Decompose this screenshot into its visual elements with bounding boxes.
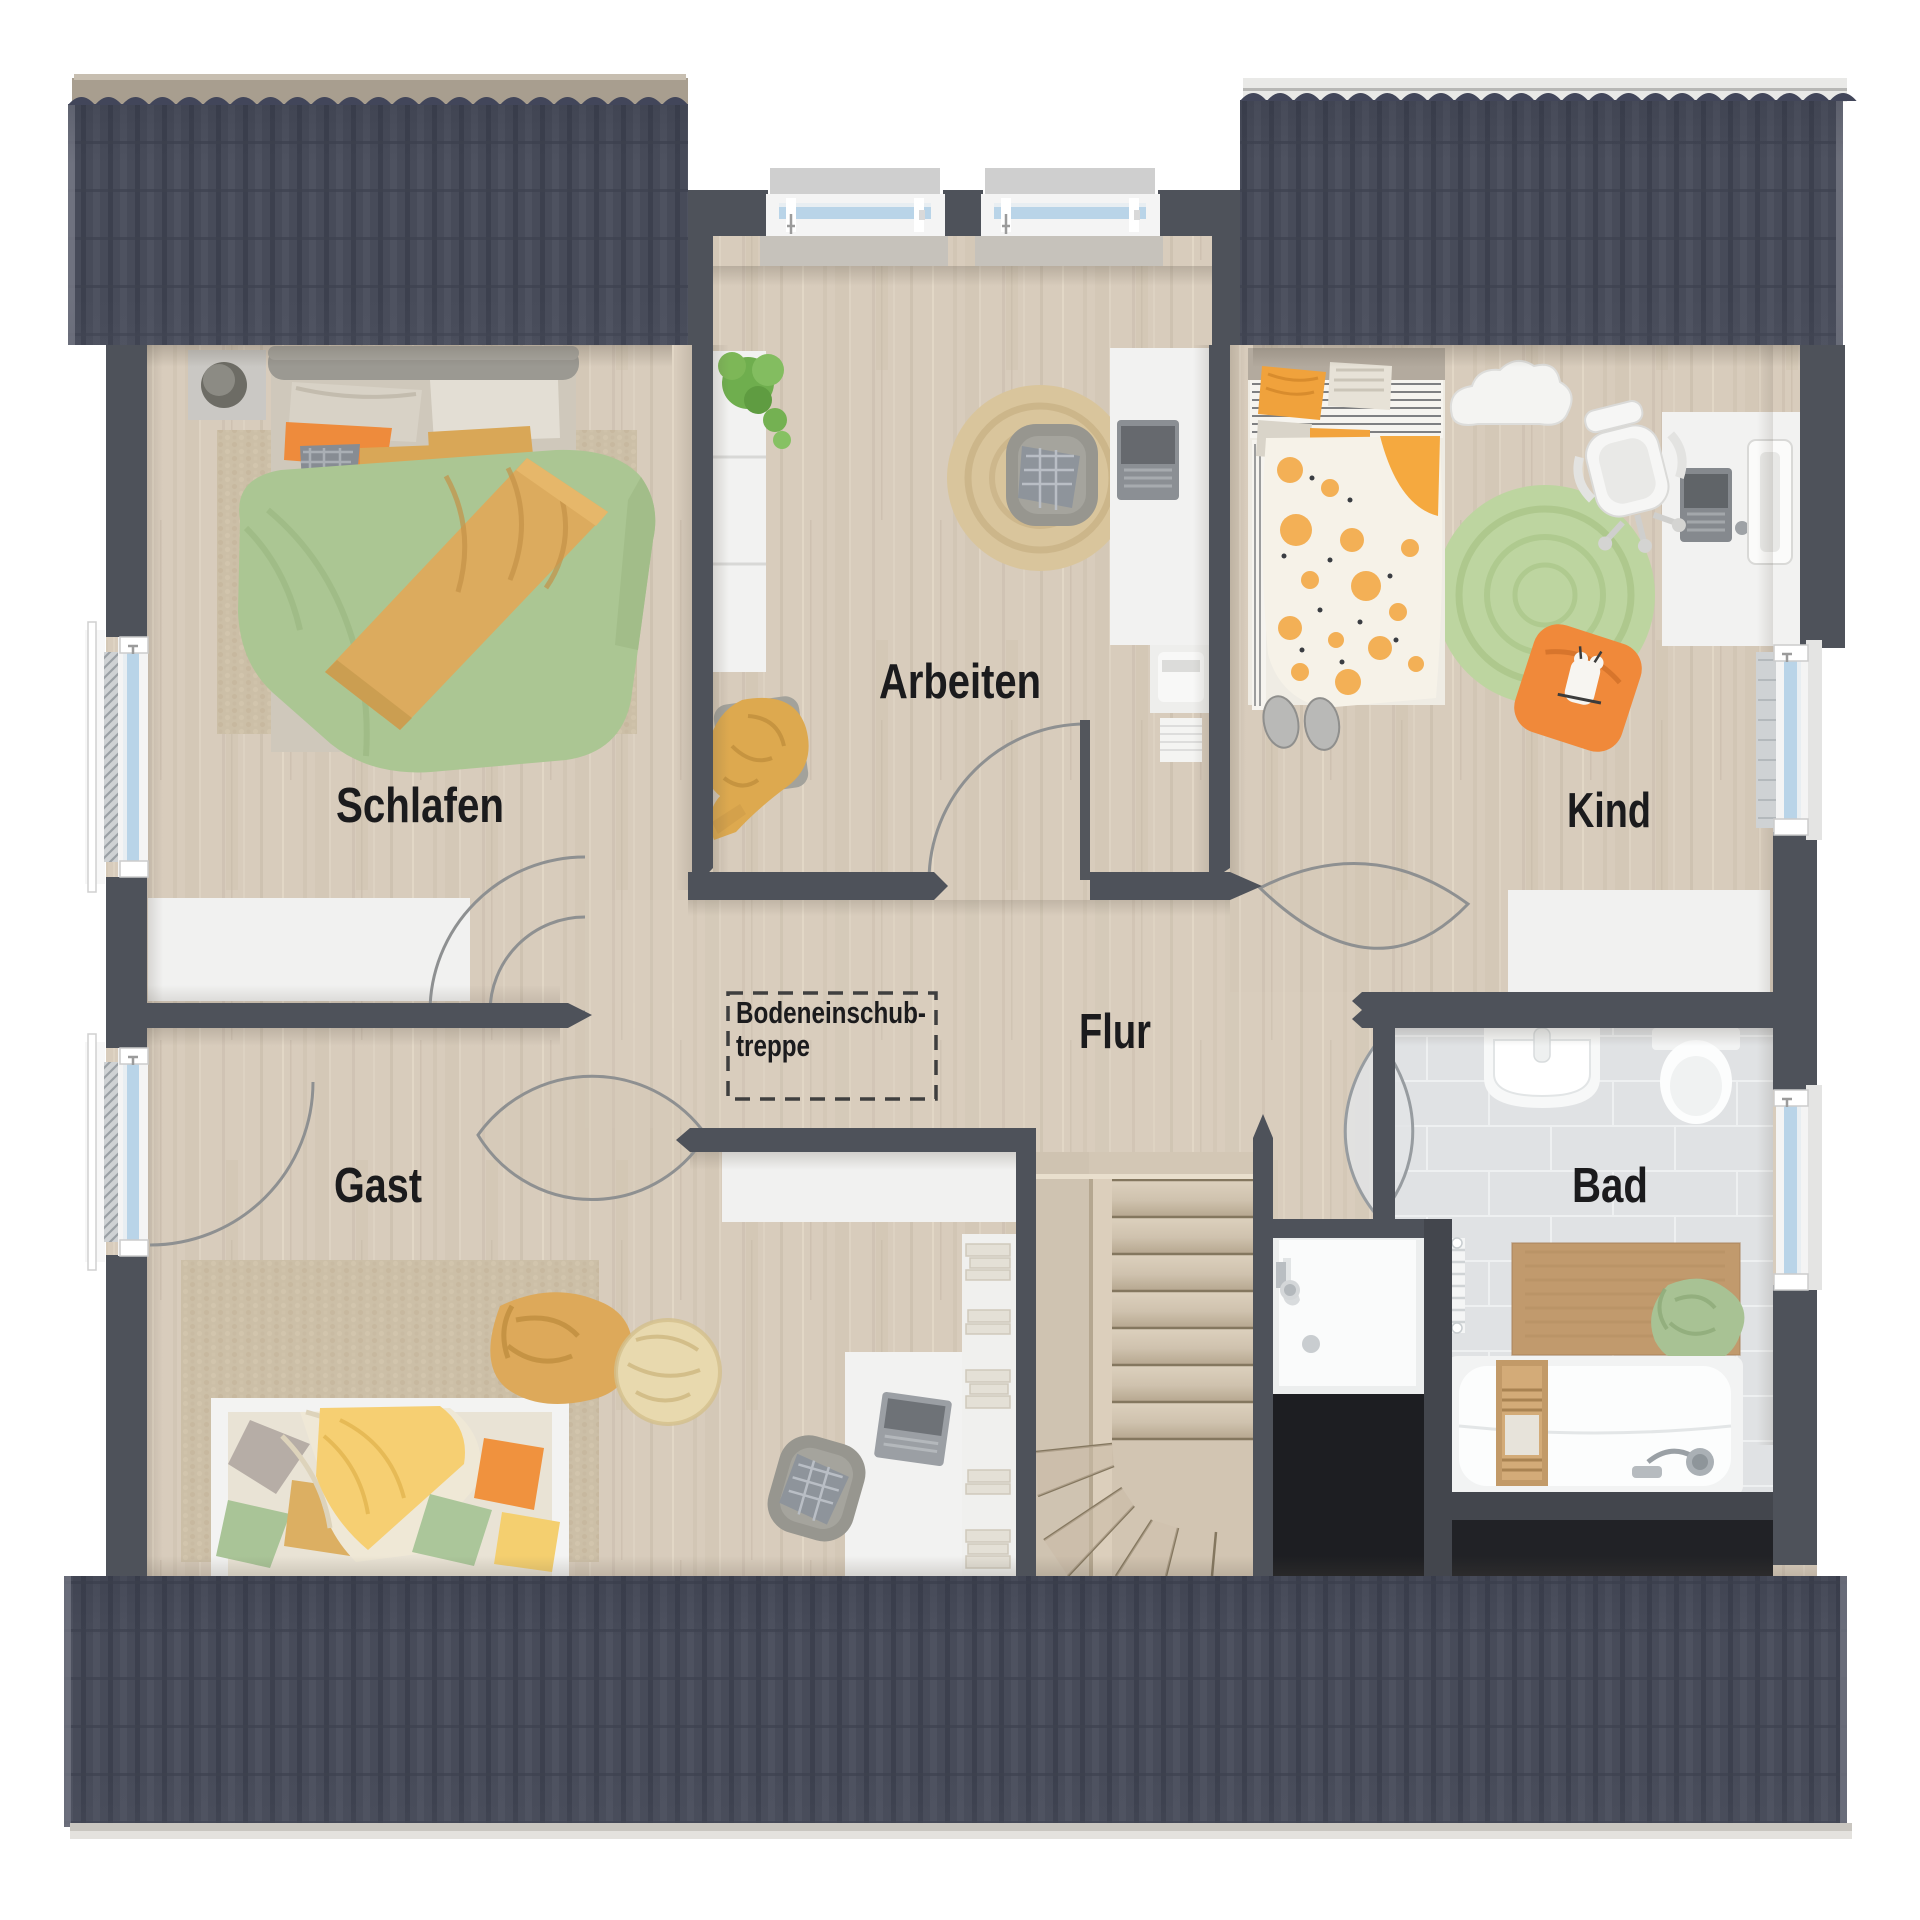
svg-text:treppe: treppe bbox=[736, 1028, 810, 1063]
svg-text:Gast: Gast bbox=[334, 1159, 422, 1213]
svg-text:Bad: Bad bbox=[1572, 1159, 1648, 1213]
svg-text:Flur: Flur bbox=[1079, 1005, 1151, 1059]
svg-text:Bodeneinschub-: Bodeneinschub- bbox=[736, 995, 926, 1030]
svg-text:Schlafen: Schlafen bbox=[336, 779, 504, 833]
svg-text:Arbeiten: Arbeiten bbox=[879, 655, 1041, 709]
svg-text:Kind: Kind bbox=[1567, 784, 1651, 838]
